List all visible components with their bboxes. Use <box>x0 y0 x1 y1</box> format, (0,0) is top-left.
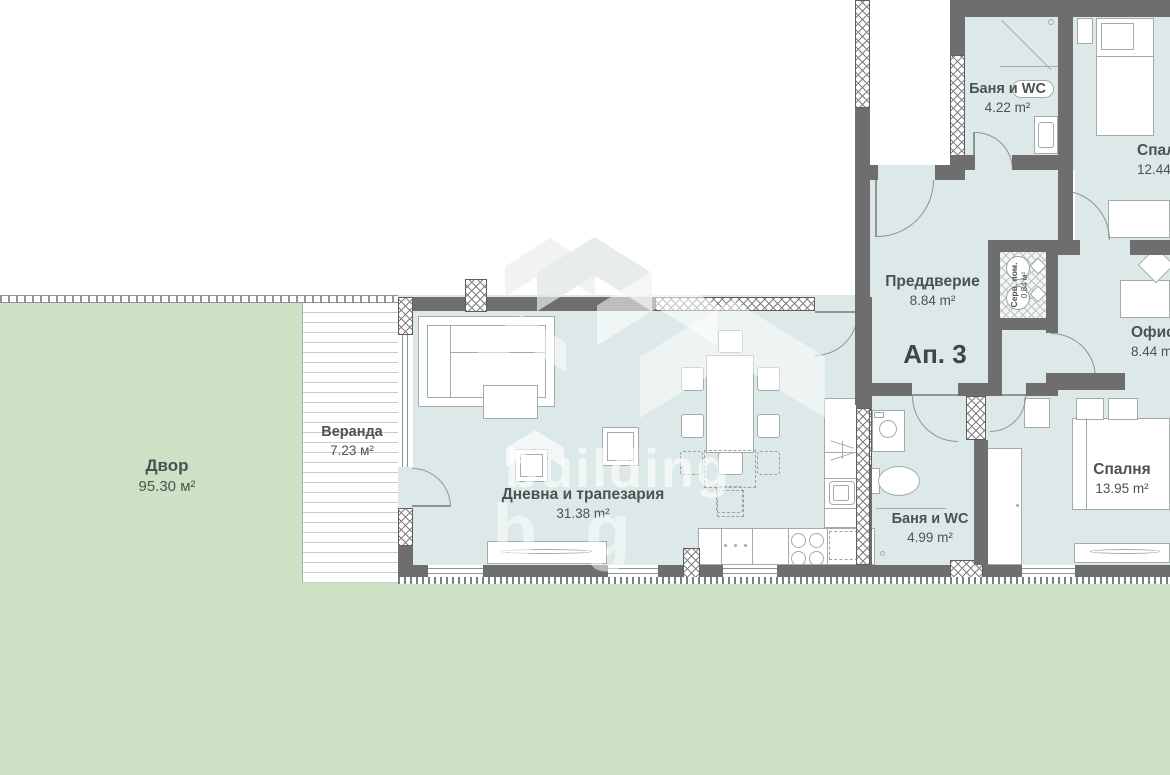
wall-segment <box>700 565 723 577</box>
tv-set <box>500 549 592 554</box>
room-name: Веранда <box>305 423 399 442</box>
room-name: Баня и WC <box>880 510 980 529</box>
room-name: Двор <box>117 455 217 477</box>
wall-segment <box>935 165 965 180</box>
wall-hatch <box>966 396 986 440</box>
dining-chair <box>718 330 743 353</box>
counter-divider <box>824 508 860 509</box>
window <box>398 335 413 467</box>
entry-door-leaf <box>875 180 877 237</box>
sofa-divider <box>450 325 451 398</box>
room-area: 12.44 m² <box>1137 161 1170 179</box>
dresser <box>1108 200 1170 238</box>
wall-segment <box>483 565 608 577</box>
kitchen-dashed-unit <box>717 490 744 517</box>
cooktop-burner <box>791 551 806 566</box>
room-label-yard: Двор 95.30 м² <box>117 455 217 497</box>
room-area: 4.22 m² <box>960 99 1055 117</box>
room-label-entry: Преддверие 8.84 m² <box>870 272 995 310</box>
dining-chair <box>757 414 780 438</box>
wall-segment <box>856 396 870 408</box>
door-leaf <box>912 394 958 396</box>
yard-area-bottom <box>302 583 1170 775</box>
yard-fence <box>0 295 398 303</box>
pillow <box>1101 23 1134 50</box>
wall-segment <box>950 0 1170 17</box>
wall-segment <box>983 565 1022 577</box>
room-area: 95.30 м² <box>117 477 217 497</box>
floor-plan-canvas: building bg Двор 95.30 м² Веранда 7.23 м… <box>0 0 1170 775</box>
counter-divider <box>752 528 753 565</box>
room-name: Спалня <box>1072 460 1170 480</box>
dining-chair <box>681 414 704 438</box>
washbasin-icon <box>1038 122 1054 148</box>
counter-divider <box>788 528 789 565</box>
room-area: 31.38 m² <box>473 505 693 523</box>
washing-machine-door <box>879 420 897 438</box>
wall-segment <box>1058 17 1073 170</box>
counter-divider <box>824 478 860 479</box>
armchair-inner <box>607 432 634 461</box>
room-area: 0.84 м² <box>1020 255 1030 315</box>
hallway-floor <box>965 165 1060 240</box>
stucco-band <box>398 577 1170 584</box>
wall-hatch <box>398 508 413 546</box>
kitchen-sink-basin <box>833 485 849 501</box>
room-name: Баня и WC <box>960 80 1055 99</box>
room-area: 8.44 m² <box>1131 343 1170 361</box>
wall-segment <box>1046 373 1125 390</box>
office-desk <box>1120 280 1170 318</box>
dining-chair-dashed <box>680 451 703 475</box>
wall-segment <box>868 165 878 180</box>
room-name: Офис <box>1131 323 1170 343</box>
wall-segment <box>1058 240 1080 255</box>
wall-segment <box>1026 383 1046 396</box>
wall-hatch <box>855 0 870 108</box>
wall-segment <box>855 108 870 405</box>
room-name: Преддверие <box>870 272 995 292</box>
wall-segment <box>1075 565 1170 577</box>
room-label-service: Серв. пом. 0.84 м² <box>990 255 1050 315</box>
bathroom-shelf-line <box>876 508 946 509</box>
wall-segment <box>958 383 990 396</box>
counter-divider <box>827 528 828 565</box>
washer-panel <box>874 412 884 418</box>
cooktop-burner <box>809 533 824 548</box>
wall-hatch <box>655 297 815 311</box>
dining-chair <box>757 367 780 391</box>
wall-segment <box>658 565 683 577</box>
wall-segment <box>398 297 655 311</box>
window <box>428 565 483 577</box>
room-label-bedroom-bottom: Спалня 13.95 m² <box>1072 460 1170 498</box>
window <box>723 565 777 577</box>
dining-chair-dashed <box>757 451 780 475</box>
room-area: 4.99 m² <box>880 529 980 547</box>
door-leaf <box>412 505 451 507</box>
toilet-icon <box>878 466 920 496</box>
room-name: Дневна и трапезария <box>473 485 693 505</box>
drain-icon <box>880 551 885 556</box>
knob <box>744 544 747 547</box>
cooktop-burner <box>809 551 824 566</box>
cooktop-burner <box>791 533 806 548</box>
room-area: 7.23 м² <box>305 442 399 460</box>
tv-set <box>1090 549 1160 554</box>
pillow <box>1076 398 1104 420</box>
coffee-table <box>483 385 538 419</box>
hood-icon <box>842 441 843 459</box>
pillow <box>1108 398 1138 420</box>
room-area: 13.95 m² <box>1072 480 1170 498</box>
wall-hatch <box>856 408 870 565</box>
dining-chair <box>681 367 704 391</box>
window <box>1022 565 1075 577</box>
nightstand <box>1077 18 1093 44</box>
yard-area <box>0 303 302 775</box>
side-table-inner <box>520 454 543 477</box>
sofa-divider <box>450 352 546 353</box>
wall-pillar <box>465 279 487 312</box>
room-label-bath-bottom: Баня и WC 4.99 m² <box>880 510 980 546</box>
room-label-living: Дневна и трапезария 31.38 m² <box>473 485 693 523</box>
counter-divider <box>721 528 722 565</box>
room-label-bath-top: Баня и WC 4.22 m² <box>960 80 1055 116</box>
shower-screen <box>1000 66 1058 67</box>
wall-segment <box>1012 155 1073 170</box>
dining-table <box>706 355 754 453</box>
wardrobe-handle <box>1016 504 1019 507</box>
room-area: 8.84 m² <box>870 292 995 310</box>
shower-head-icon <box>1048 19 1054 25</box>
bed-sheet-line <box>1097 56 1153 57</box>
fridge-dashed <box>829 531 858 560</box>
nightstand <box>1024 398 1050 428</box>
room-label-bedroom-top: Спалня 12.44 m² <box>1137 141 1170 179</box>
room-name: Спалня <box>1137 141 1170 161</box>
wall-segment <box>855 383 912 396</box>
apartment-number-label: Ап. 3 <box>885 338 985 372</box>
wall-segment <box>988 318 1002 396</box>
room-label-office: Офис 8.44 m² <box>1131 323 1170 361</box>
window <box>608 565 658 577</box>
room-label-veranda: Веранда 7.23 м² <box>305 423 399 459</box>
wall-segment <box>1130 240 1170 255</box>
dining-chair <box>718 452 743 475</box>
knob <box>724 544 727 547</box>
door-leaf <box>815 311 858 313</box>
wall-hatch <box>398 297 413 335</box>
knob <box>734 544 737 547</box>
room-name: Серв. пом. <box>1009 255 1020 315</box>
wall-segment <box>398 565 428 577</box>
wall-segment <box>777 565 953 577</box>
